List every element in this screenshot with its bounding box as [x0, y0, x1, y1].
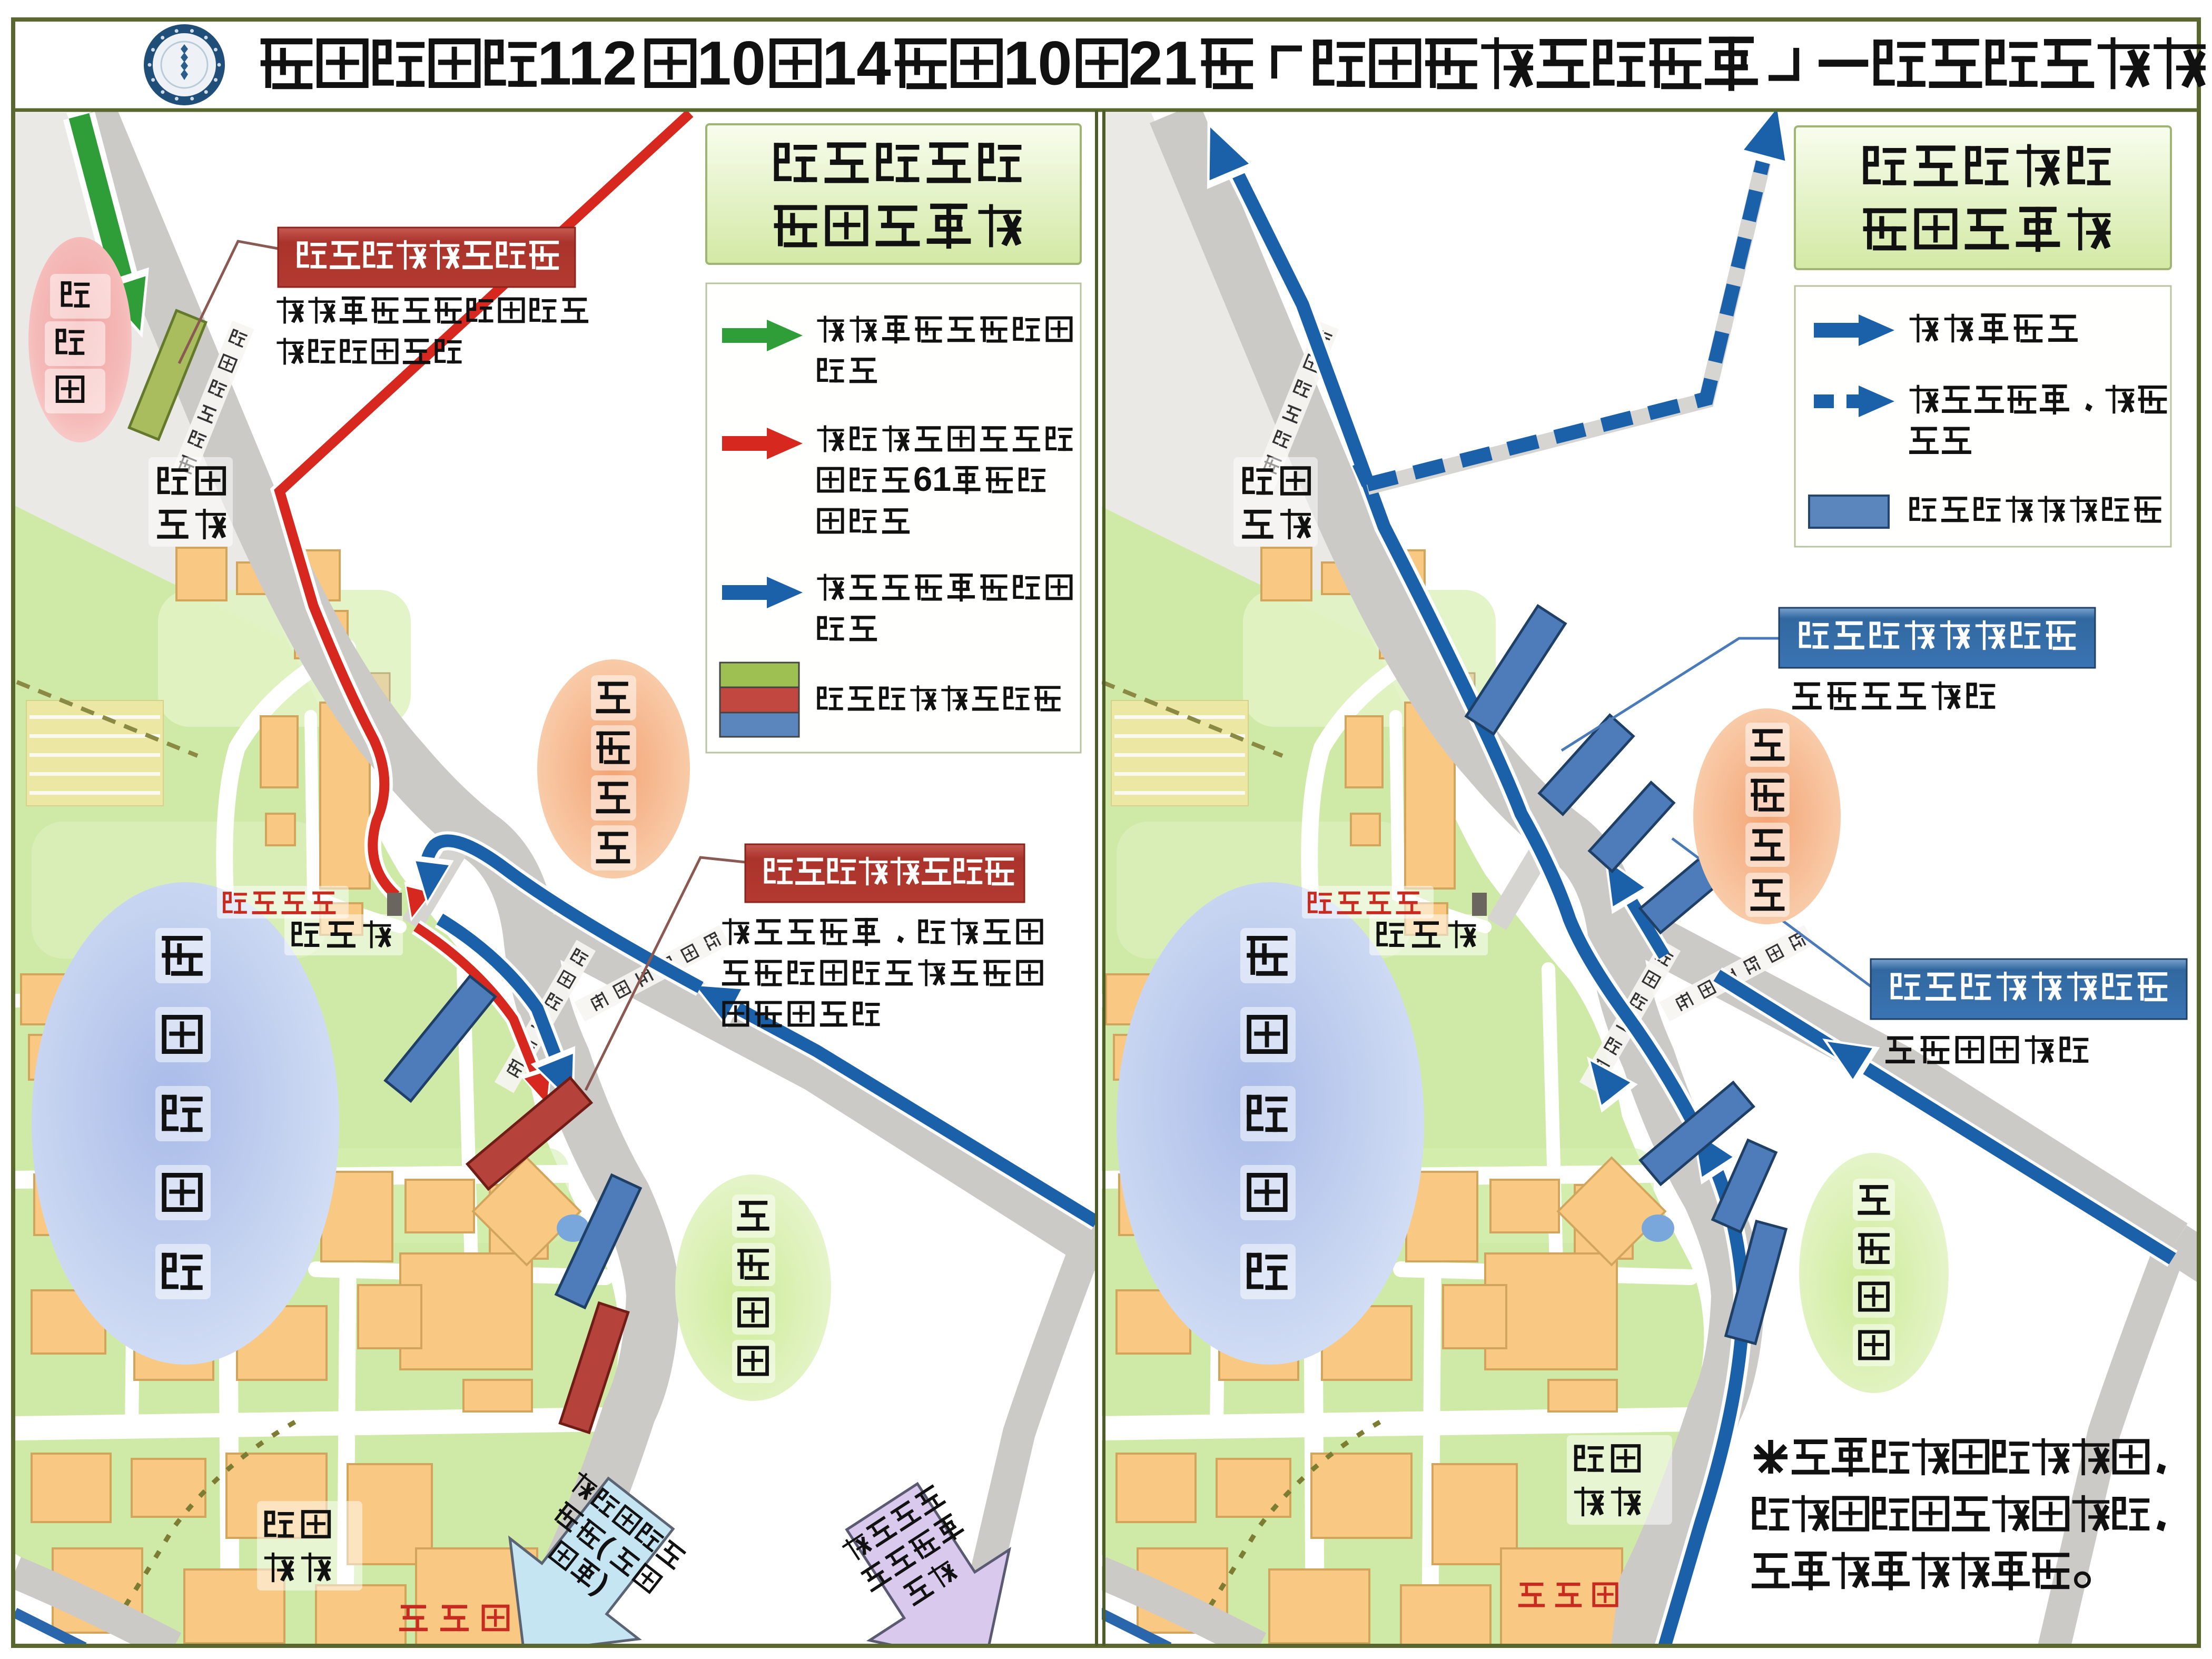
svg-text:10: 10 [1003, 28, 1072, 97]
svg-text:21: 21 [1129, 28, 1198, 97]
svg-text:10: 10 [697, 28, 766, 97]
svg-text:14: 14 [822, 28, 891, 97]
svg-text:61: 61 [913, 460, 951, 498]
svg-text:112: 112 [537, 28, 637, 97]
